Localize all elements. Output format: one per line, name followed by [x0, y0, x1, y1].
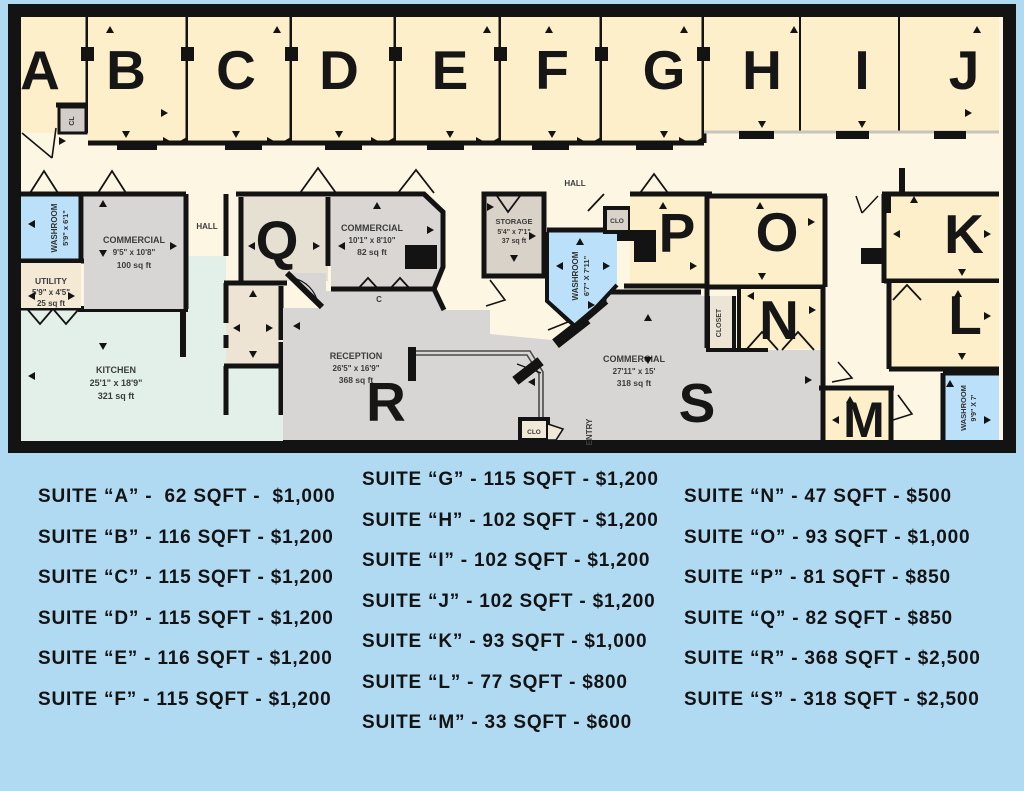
svg-text:6'7" X 7'11": 6'7" X 7'11": [582, 255, 591, 296]
svg-text:HALL: HALL: [564, 179, 585, 188]
svg-text:E: E: [432, 39, 469, 101]
svg-text:C: C: [376, 295, 382, 304]
svg-text:CLO: CLO: [527, 429, 541, 436]
svg-text:N: N: [759, 289, 799, 351]
svg-text:82 sq ft: 82 sq ft: [357, 247, 387, 257]
svg-text:KITCHEN: KITCHEN: [96, 365, 136, 375]
svg-text:9'5" x 10'8": 9'5" x 10'8": [113, 248, 156, 257]
svg-text:COMMERCIAL: COMMERCIAL: [603, 354, 665, 364]
svg-text:WASHROOM: WASHROOM: [50, 203, 59, 252]
svg-text:25'1" x 18'9": 25'1" x 18'9": [90, 378, 143, 388]
svg-text:I: I: [854, 39, 869, 101]
svg-text:R: R: [366, 371, 406, 433]
svg-text:O: O: [756, 201, 799, 263]
svg-text:C: C: [216, 39, 256, 101]
svg-text:STORAGE: STORAGE: [496, 217, 533, 226]
svg-text:A: A: [20, 39, 60, 101]
svg-text:P: P: [659, 202, 696, 264]
svg-text:F: F: [535, 39, 569, 101]
svg-text:CLOSET: CLOSET: [716, 308, 723, 337]
svg-text:10'1" x 8'10": 10'1" x 8'10": [349, 236, 396, 245]
svg-text:27'11" x 15': 27'11" x 15': [613, 367, 656, 376]
svg-text:UTILITY: UTILITY: [35, 276, 67, 286]
svg-text:J: J: [949, 39, 980, 101]
svg-text:G: G: [643, 39, 686, 101]
svg-text:B: B: [106, 39, 146, 101]
svg-text:Q: Q: [256, 209, 299, 271]
svg-text:WASHROOM: WASHROOM: [571, 251, 580, 300]
svg-text:25 sq ft: 25 sq ft: [37, 299, 65, 308]
svg-text:S: S: [679, 372, 716, 434]
svg-text:318 sq ft: 318 sq ft: [617, 378, 652, 388]
svg-text:COMMERCIAL: COMMERCIAL: [341, 223, 403, 233]
svg-text:CLO: CLO: [610, 218, 624, 225]
svg-text:HALL: HALL: [196, 222, 217, 231]
svg-text:5'4" x 7'1": 5'4" x 7'1": [497, 229, 530, 236]
svg-text:K: K: [944, 203, 984, 265]
svg-text:321 sq ft: 321 sq ft: [98, 391, 135, 401]
svg-text:RECEPTION: RECEPTION: [330, 351, 383, 361]
svg-text:L: L: [948, 284, 982, 346]
svg-text:9'9" X 7': 9'9" X 7': [971, 394, 978, 421]
svg-text:CL: CL: [69, 116, 76, 126]
svg-text:H: H: [742, 39, 782, 101]
svg-text:D: D: [319, 39, 359, 101]
svg-text:ENTRY: ENTRY: [585, 418, 594, 445]
svg-text:5'9" x 6'1": 5'9" x 6'1": [61, 210, 70, 246]
svg-text:WASHROOM: WASHROOM: [959, 385, 968, 431]
svg-text:100 sq ft: 100 sq ft: [117, 260, 152, 270]
svg-text:5'9" x 4'5": 5'9" x 4'5": [32, 288, 70, 297]
svg-text:COMMERCIAL: COMMERCIAL: [103, 235, 165, 245]
svg-text:37 sq ft: 37 sq ft: [502, 238, 527, 245]
